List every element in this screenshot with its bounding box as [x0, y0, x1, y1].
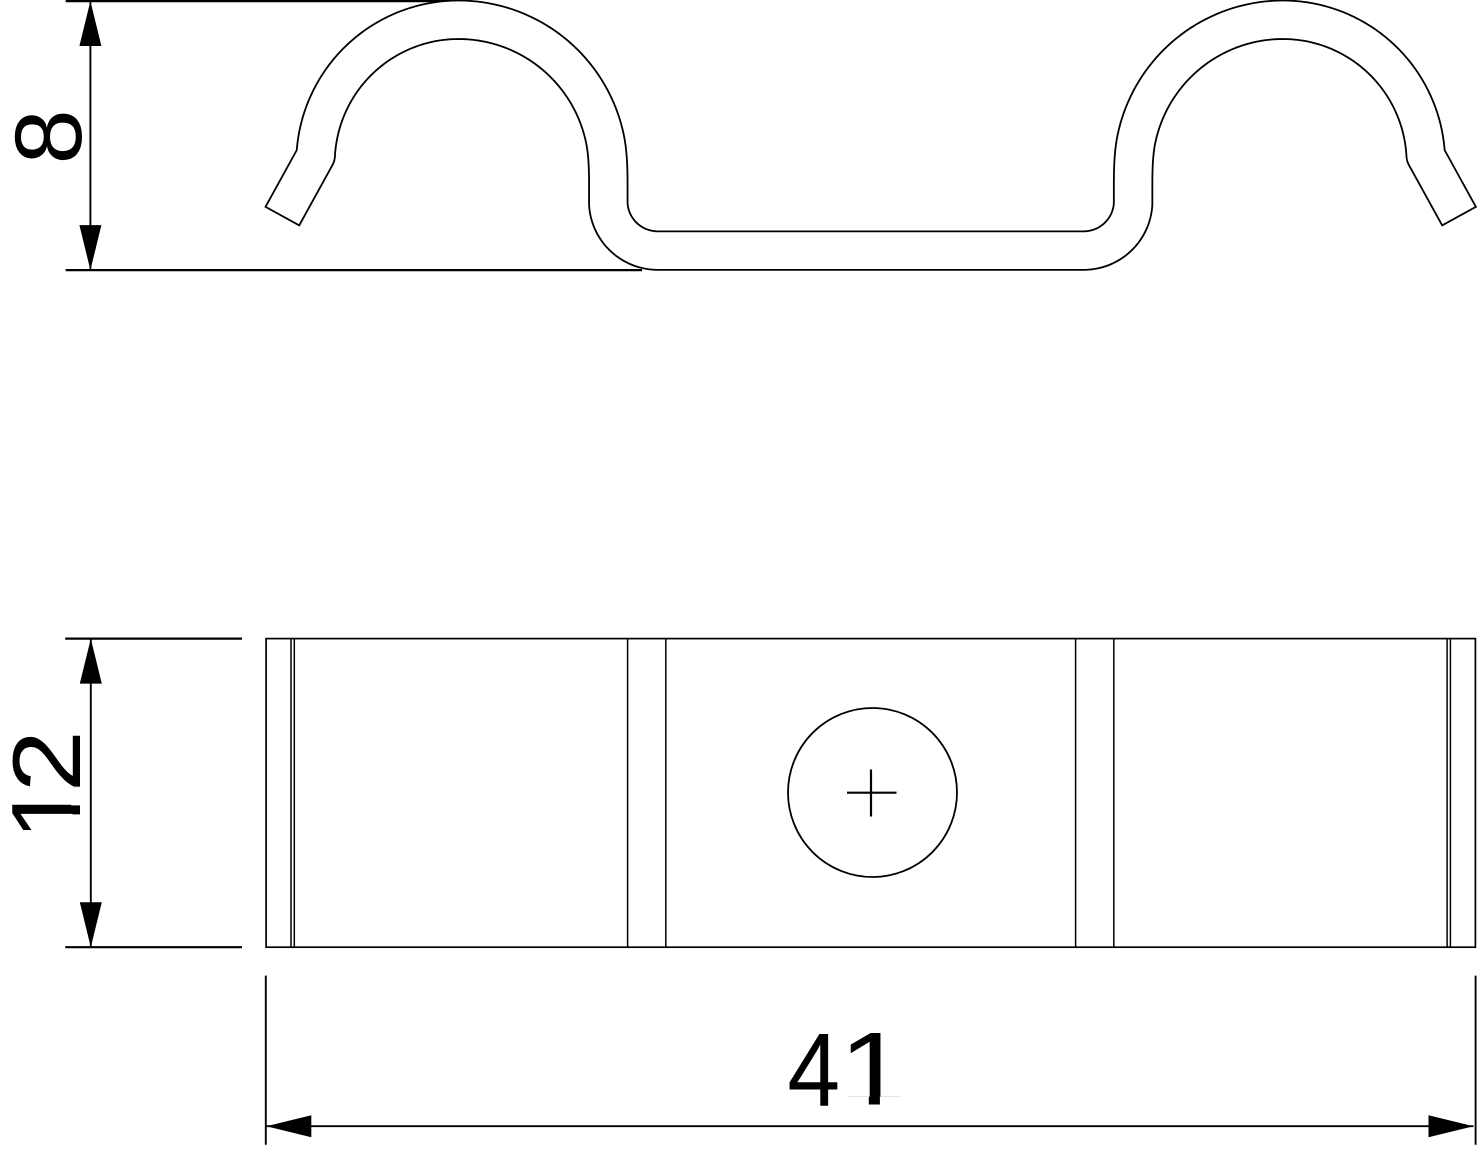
- svg-text:1: 1: [839, 1011, 907, 1128]
- svg-text:8: 8: [0, 109, 101, 164]
- svg-text:2: 2: [0, 730, 101, 792]
- svg-text:4: 4: [787, 1013, 840, 1129]
